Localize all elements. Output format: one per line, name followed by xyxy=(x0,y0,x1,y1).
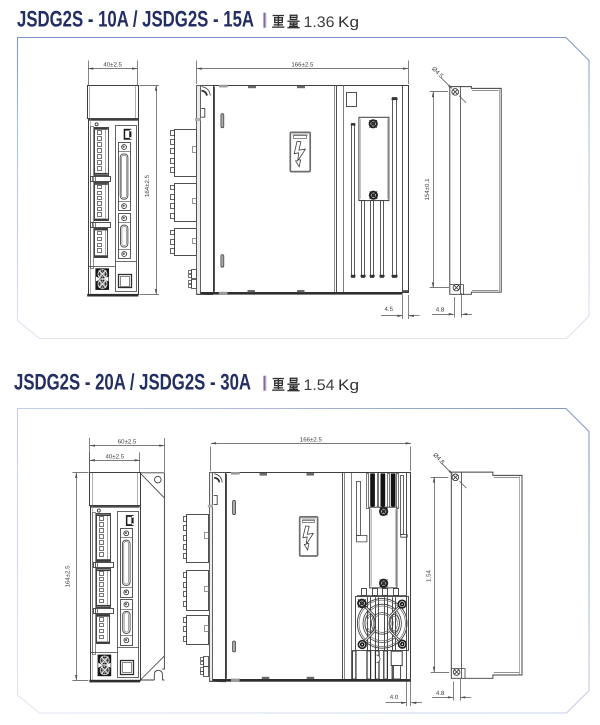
svg-text:60±2.5: 60±2.5 xyxy=(118,439,137,446)
svg-text:166±2.5: 166±2.5 xyxy=(300,436,323,443)
svg-text:154±0.1: 154±0.1 xyxy=(424,178,431,201)
svg-text:JSDG2S - 10A / JSDG2S - 15A: JSDG2S - 10A / JSDG2S - 15A xyxy=(17,7,254,32)
svg-text:1.36: 1.36 xyxy=(304,14,335,31)
svg-text:4.0: 4.0 xyxy=(390,694,399,701)
svg-text:1.54: 1.54 xyxy=(425,569,432,581)
svg-text:Kg: Kg xyxy=(338,14,359,31)
svg-text:164±2.5: 164±2.5 xyxy=(144,174,151,197)
svg-text:4.8: 4.8 xyxy=(436,307,445,314)
svg-text:4.8: 4.8 xyxy=(436,690,445,697)
svg-text:164±2.5: 164±2.5 xyxy=(64,565,71,588)
svg-text:1.54: 1.54 xyxy=(304,377,335,394)
svg-text:40±2.5: 40±2.5 xyxy=(106,453,125,460)
svg-text:4.5: 4.5 xyxy=(385,306,394,313)
svg-text:40±2.5: 40±2.5 xyxy=(103,62,122,69)
svg-text:166±2.5: 166±2.5 xyxy=(291,62,314,69)
svg-text:JSDG2S - 20A / JSDG2S - 30A: JSDG2S - 20A / JSDG2S - 30A xyxy=(14,370,251,395)
svg-text:Kg: Kg xyxy=(338,377,359,394)
